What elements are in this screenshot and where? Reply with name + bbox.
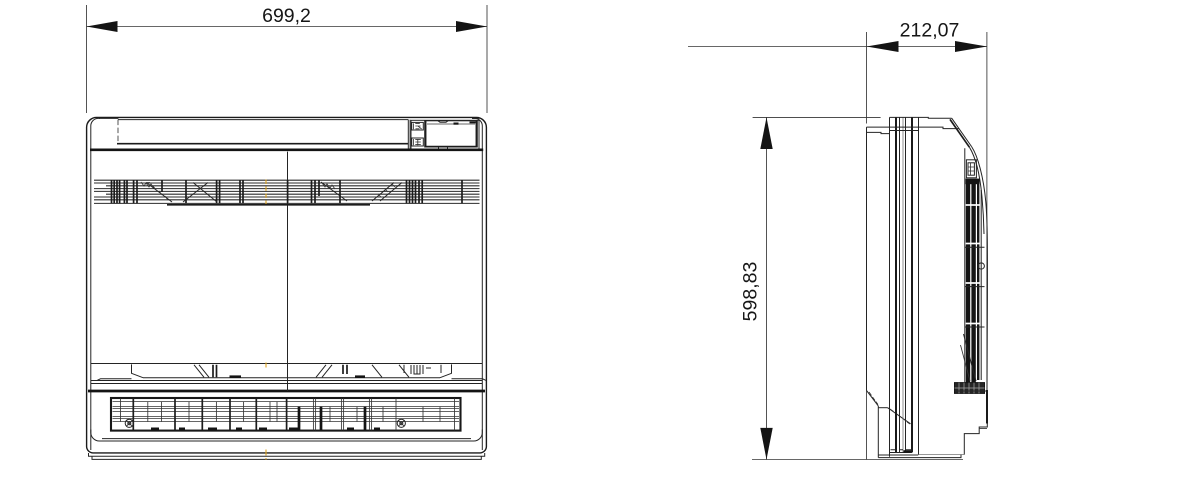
svg-text:699,2: 699,2 — [262, 5, 311, 27]
svg-text:212,07: 212,07 — [900, 20, 960, 42]
svg-text:598,83: 598,83 — [739, 262, 761, 322]
